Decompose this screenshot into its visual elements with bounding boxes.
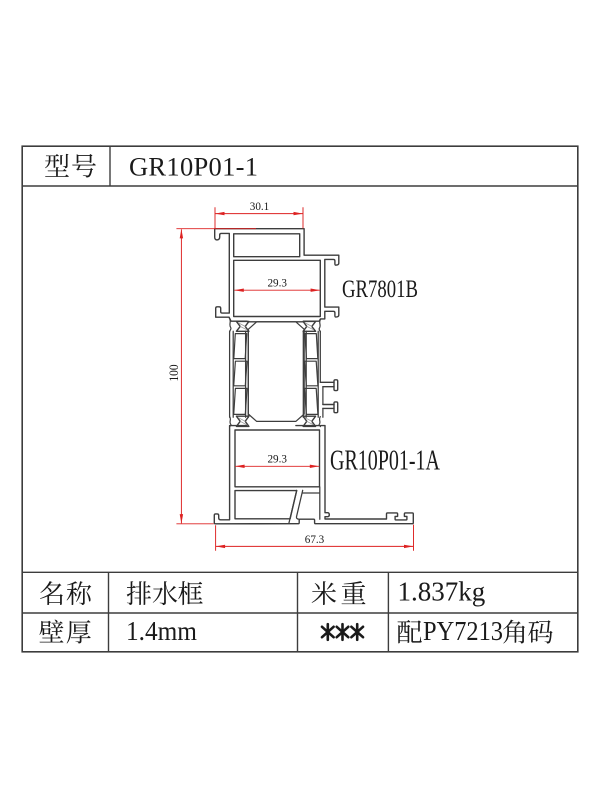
svg-text:1.837kg: 1.837kg xyxy=(398,576,486,606)
svg-text:PY7213: PY7213 xyxy=(423,616,503,646)
svg-text:67.3: 67.3 xyxy=(305,534,325,546)
svg-text:29.3: 29.3 xyxy=(267,278,287,290)
svg-text:30.1: 30.1 xyxy=(250,201,270,213)
svg-text:GR10P01-1: GR10P01-1 xyxy=(129,152,258,182)
svg-text:GR10P01-1A: GR10P01-1A xyxy=(330,445,441,476)
svg-text:1.4mm: 1.4mm xyxy=(126,616,197,646)
svg-text:GR7801B: GR7801B xyxy=(342,274,418,303)
svg-text:100: 100 xyxy=(167,365,181,382)
svg-text:29.3: 29.3 xyxy=(267,454,287,466)
